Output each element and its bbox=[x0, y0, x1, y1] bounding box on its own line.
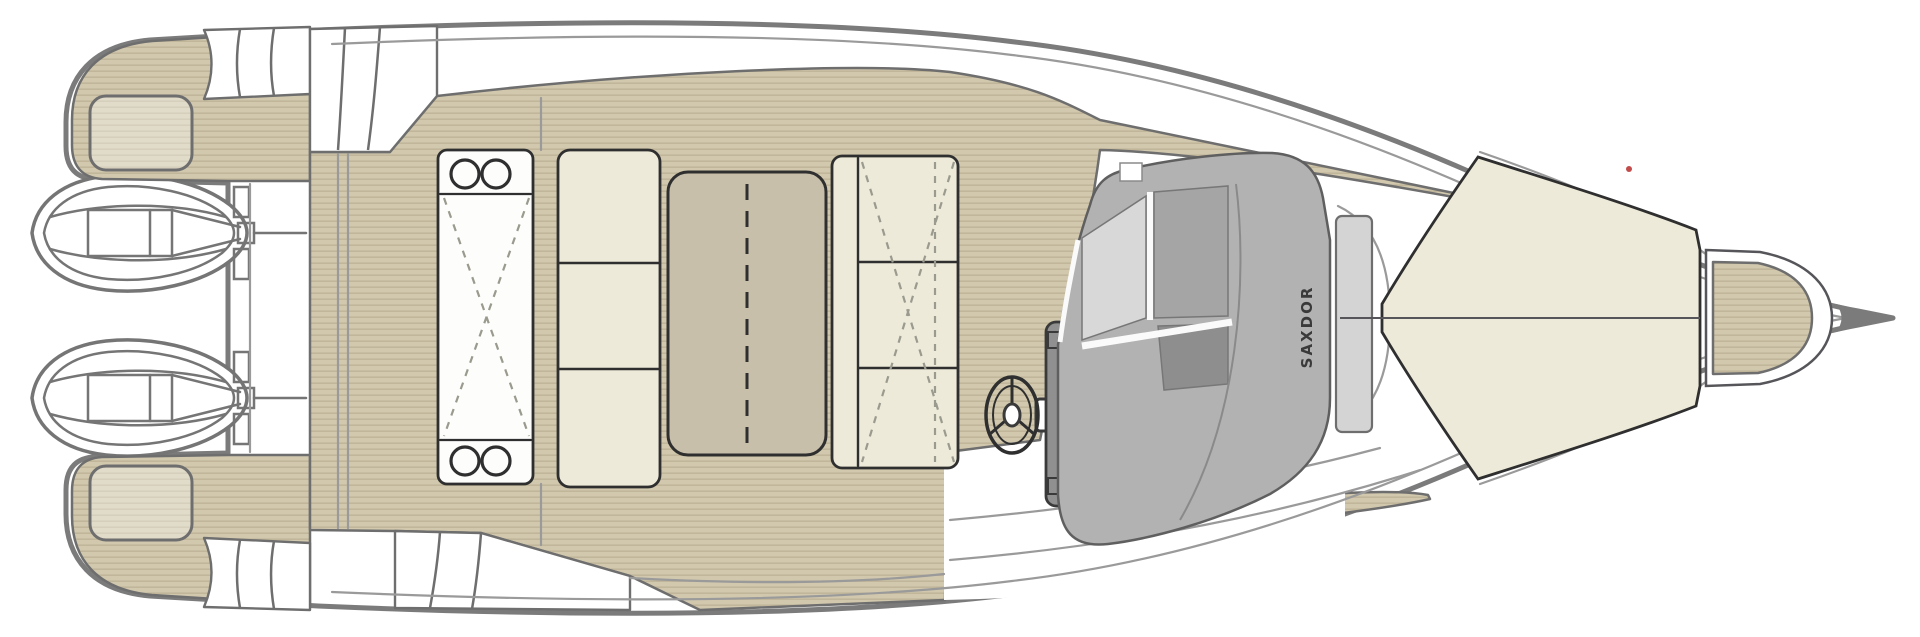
windshield-pane-mid bbox=[1154, 186, 1228, 318]
deck-plan-canvas: SAXDOR bbox=[0, 0, 1920, 637]
boat-deck-plan: SAXDOR bbox=[0, 0, 1920, 637]
bow-roller bbox=[1836, 304, 1884, 332]
windshield-front-pane bbox=[1336, 216, 1372, 432]
forward-bench bbox=[832, 156, 958, 468]
bow-marker-dot bbox=[1626, 166, 1632, 172]
stern-step-upper bbox=[204, 27, 310, 99]
platform-hatch-lower bbox=[90, 466, 192, 540]
platform-hatch-upper bbox=[90, 96, 192, 170]
cockpit-furniture bbox=[438, 150, 958, 487]
brand-label: SAXDOR bbox=[1298, 286, 1316, 369]
stern-step-lower bbox=[204, 538, 310, 610]
aft-galley-module bbox=[438, 150, 533, 484]
console-hatch-notch bbox=[1120, 163, 1142, 181]
aft-bench bbox=[558, 150, 660, 487]
cockpit-table bbox=[668, 172, 826, 455]
